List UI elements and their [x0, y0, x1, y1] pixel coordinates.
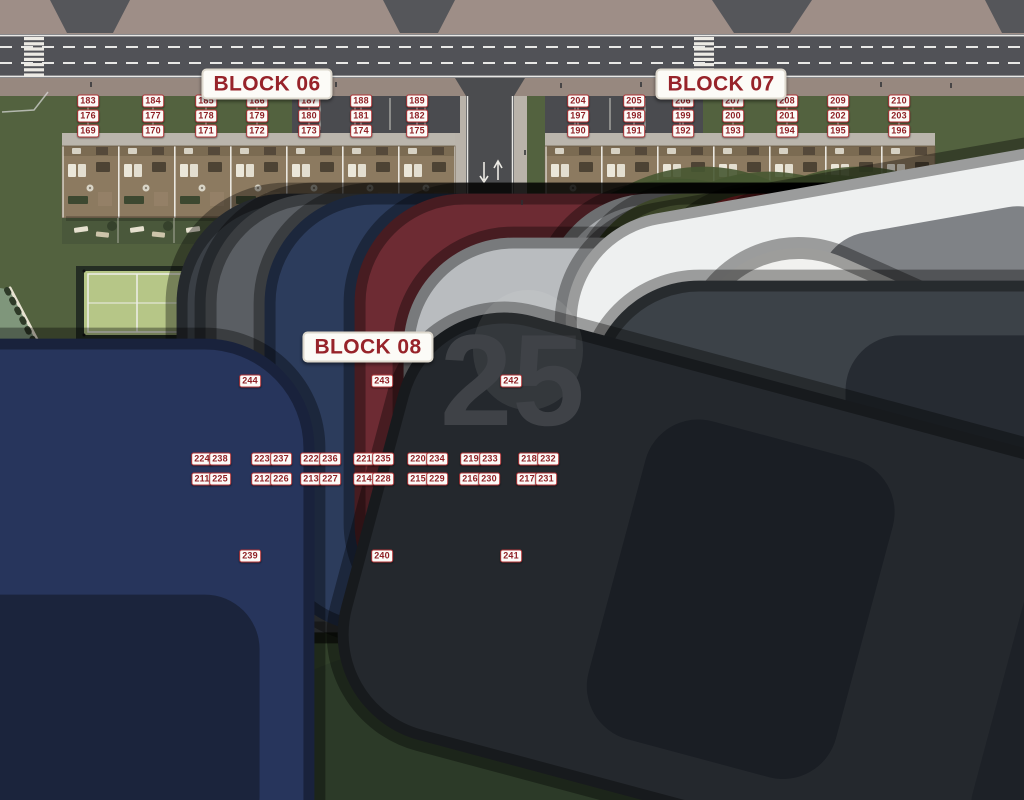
unit-label-236: 236	[319, 453, 341, 466]
block-07-banner: BLOCK 07	[655, 69, 786, 100]
unit-label-196: 196	[888, 125, 910, 138]
unit-label-209: 209	[827, 95, 849, 108]
unit-label-195: 195	[827, 125, 849, 138]
unit-label-180: 180	[298, 110, 320, 123]
unit-label-176: 176	[77, 110, 99, 123]
unit-label-197: 197	[567, 110, 589, 123]
unit-label-229: 229	[426, 473, 448, 486]
unit-label-233: 233	[479, 453, 501, 466]
unit-label-205: 205	[623, 95, 645, 108]
unit-label-237: 237	[270, 453, 292, 466]
unit-label-188: 188	[350, 95, 372, 108]
unit-label-239: 239	[239, 550, 261, 563]
unit-label-231: 231	[535, 473, 557, 486]
unit-label-178: 178	[195, 110, 217, 123]
unit-label-234: 234	[426, 453, 448, 466]
unit-label-226: 226	[270, 473, 292, 486]
unit-label-190: 190	[567, 125, 589, 138]
unit-label-243: 243	[371, 375, 393, 388]
unit-label-198: 198	[623, 110, 645, 123]
unit-label-181: 181	[350, 110, 372, 123]
unit-label-240: 240	[371, 550, 393, 563]
unit-label-230: 230	[478, 473, 500, 486]
site-plan: 25 1831841851861871881891761771781791801…	[0, 0, 1024, 800]
unit-label-238: 238	[209, 453, 231, 466]
unit-label-177: 177	[142, 110, 164, 123]
unit-label-179: 179	[246, 110, 268, 123]
unit-label-183: 183	[77, 95, 99, 108]
unit-label-184: 184	[142, 95, 164, 108]
unit-label-200: 200	[722, 110, 744, 123]
unit-label-174: 174	[350, 125, 372, 138]
unit-label-193: 193	[722, 125, 744, 138]
unit-label-242: 242	[500, 375, 522, 388]
unit-label-175: 175	[406, 125, 428, 138]
unit-label-171: 171	[195, 125, 217, 138]
block-08-banner: BLOCK 08	[302, 332, 433, 363]
unit-label-241: 241	[500, 550, 522, 563]
unit-label-173: 173	[298, 125, 320, 138]
unit-label-227: 227	[319, 473, 341, 486]
unit-labels-layer: 1831841851861871881891761771781791801811…	[0, 0, 1024, 800]
unit-label-194: 194	[776, 125, 798, 138]
unit-label-191: 191	[623, 125, 645, 138]
unit-label-172: 172	[246, 125, 268, 138]
unit-label-225: 225	[209, 473, 231, 486]
unit-label-210: 210	[888, 95, 910, 108]
block-06-banner: BLOCK 06	[201, 69, 332, 100]
unit-label-232: 232	[537, 453, 559, 466]
unit-label-201: 201	[776, 110, 798, 123]
unit-label-204: 204	[567, 95, 589, 108]
unit-label-169: 169	[77, 125, 99, 138]
unit-label-235: 235	[372, 453, 394, 466]
unit-label-199: 199	[672, 110, 694, 123]
unit-label-228: 228	[372, 473, 394, 486]
unit-label-203: 203	[888, 110, 910, 123]
unit-label-202: 202	[827, 110, 849, 123]
unit-label-192: 192	[672, 125, 694, 138]
unit-label-244: 244	[239, 375, 261, 388]
unit-label-182: 182	[406, 110, 428, 123]
unit-label-170: 170	[142, 125, 164, 138]
unit-label-189: 189	[406, 95, 428, 108]
